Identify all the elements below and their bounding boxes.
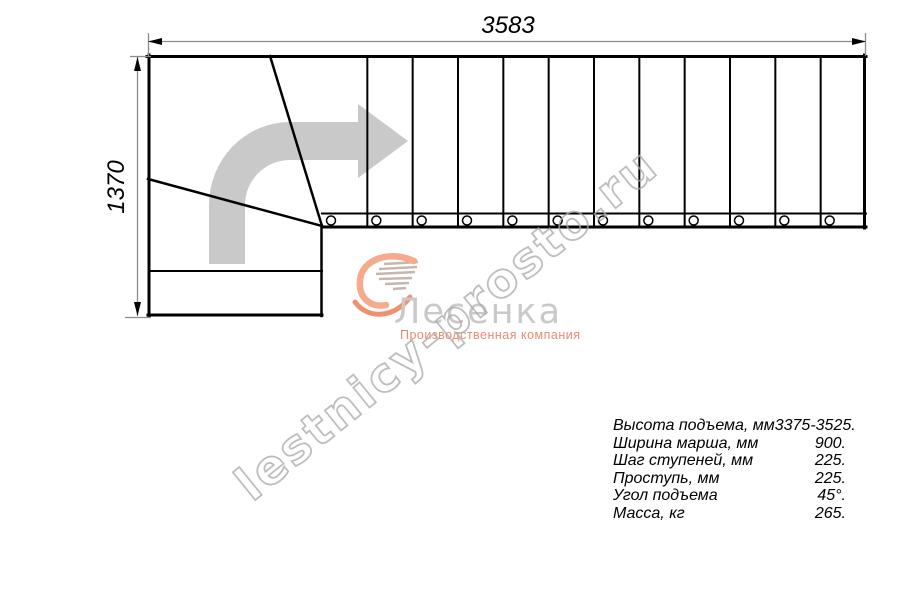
spec-value: 45°. xyxy=(817,487,846,505)
baluster-circle xyxy=(417,216,426,225)
dim-arrow-up xyxy=(134,57,141,71)
baluster-circle xyxy=(508,216,517,225)
spec-value: 3375-3525. xyxy=(775,417,856,435)
specs-table: Высота подъема, мм 3375-3525. Ширина мар… xyxy=(613,417,846,523)
spec-row-mass: Масса, кг 265. xyxy=(613,505,846,523)
spec-label: Масса, кг xyxy=(613,505,685,523)
spec-value: 225. xyxy=(815,452,846,470)
spec-row-height: Высота подъема, мм 3375-3525. xyxy=(613,417,846,435)
spec-row-width: Ширина марша, мм 900. xyxy=(613,435,846,453)
baluster-circle xyxy=(735,216,744,225)
spec-label: Угол подъема xyxy=(613,487,718,505)
baluster-circle xyxy=(372,216,381,225)
baluster-circle xyxy=(599,216,608,225)
dimension-width-label: 3583 xyxy=(455,12,561,40)
company-logo: Лесенка Производственная компания xyxy=(348,252,578,347)
baluster-circle xyxy=(327,216,336,225)
spec-value: 900. xyxy=(815,435,846,453)
baluster-circle xyxy=(780,216,789,225)
baluster-circle xyxy=(553,216,562,225)
spec-row-step: Шаг ступеней, мм 225. xyxy=(613,452,846,470)
dimension-height-label: 1370 xyxy=(103,134,129,240)
spec-row-tread: Проступь, мм 225. xyxy=(613,470,846,488)
baluster-circle xyxy=(463,216,472,225)
spec-row-angle: Угол подъема 45°. xyxy=(613,487,846,505)
dim-arrow-left xyxy=(148,38,162,45)
spec-label: Шаг ступеней, мм xyxy=(613,452,753,470)
logo-name-text: Лесенка xyxy=(394,292,562,332)
dim-arrow-right xyxy=(852,38,866,45)
baluster-circle xyxy=(825,216,834,225)
spec-label: Проступь, мм xyxy=(613,470,719,488)
baluster-circle xyxy=(644,216,653,225)
spec-value: 265. xyxy=(815,505,846,523)
dim-arrow-down xyxy=(134,302,141,316)
logo-tagline-text: Производственная компания xyxy=(400,328,581,342)
spec-label: Высота подъема, мм xyxy=(613,417,775,435)
spec-label: Ширина марша, мм xyxy=(613,435,758,453)
stair-drawing-page: 3583 1370 Лесенка Производственная компа… xyxy=(0,0,900,600)
spec-value: 225. xyxy=(815,470,846,488)
baluster-circle xyxy=(689,216,698,225)
